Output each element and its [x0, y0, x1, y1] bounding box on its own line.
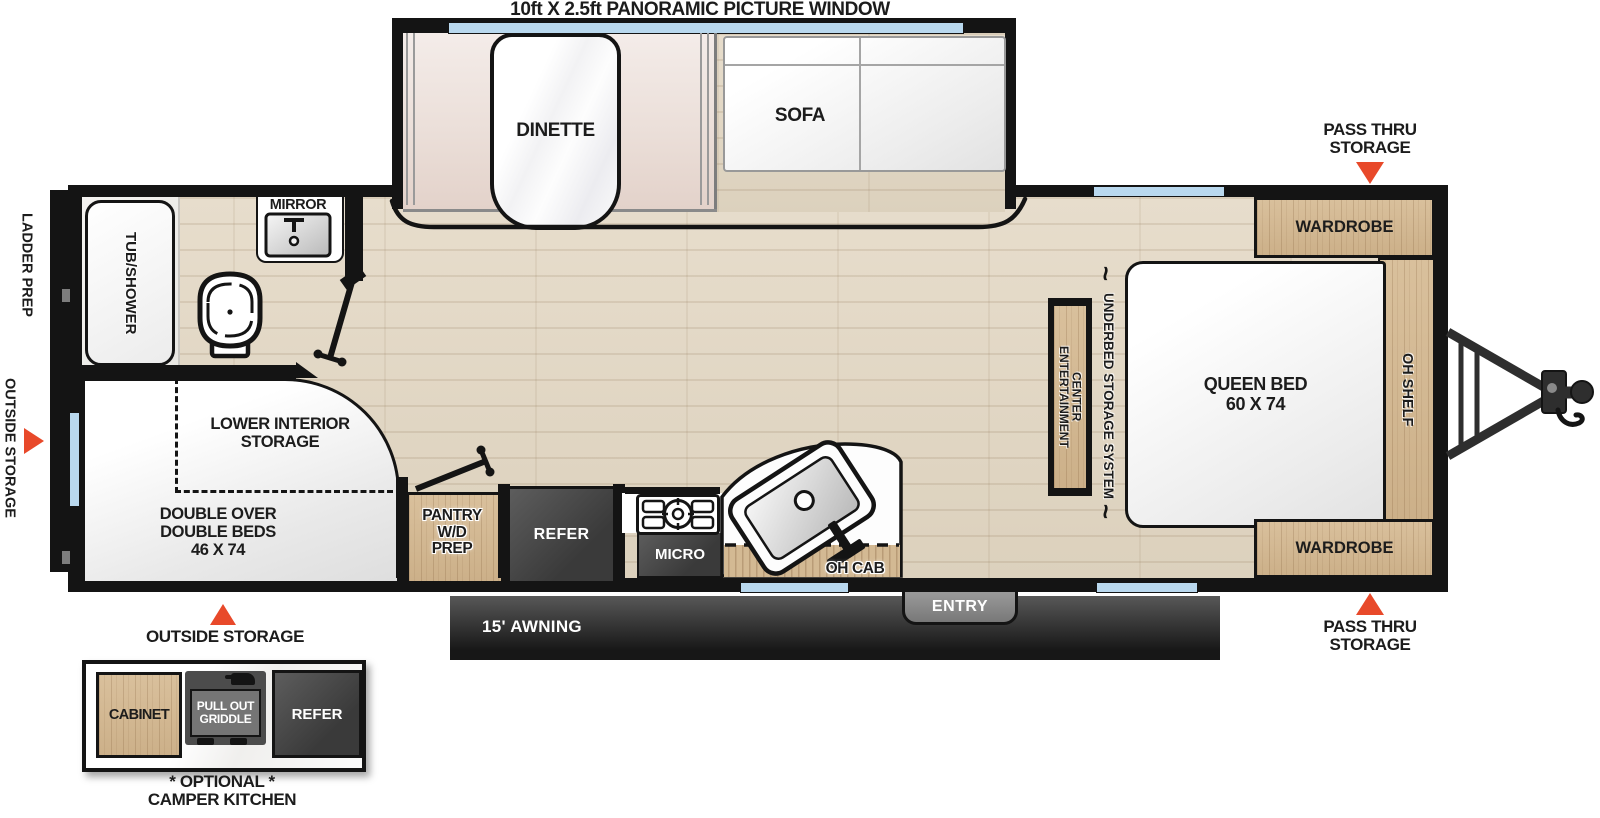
pull-out-griddle-unit: PULL OUT GRIDDLE: [185, 671, 266, 745]
outside-storage-left-arrow-icon: [24, 428, 44, 454]
kitchen-post-right: [613, 484, 625, 578]
griddle-kettle-handle-icon: [225, 675, 233, 679]
oh-shelf-label: OH SHELF: [1399, 353, 1414, 426]
pantry-label: PANTRY W/D PREP: [406, 508, 498, 558]
griddle-label-panel: PULL OUT GRIDDLE: [190, 689, 261, 737]
entry-door-tab: ENTRY: [902, 589, 1018, 625]
sofa-label: SOFA: [725, 106, 875, 127]
pass-thru-storage-bottom-label: PASS THRU STORAGE: [1295, 618, 1445, 655]
entertainment-center-label: ENTERTAINMENT CENTER: [1057, 346, 1082, 448]
page-title: 10ft X 2.5ft PANORAMIC PICTURE WINDOW: [400, 0, 1000, 21]
window-rear-wall: [69, 412, 80, 507]
mirror-label: MIRROR: [256, 198, 340, 214]
slide-divider-line: [714, 33, 717, 209]
sofa-back-line: [725, 64, 1004, 66]
underbed-storage-label: UNDERBED STORAGE SYSTEM: [1101, 293, 1115, 499]
microwave: MICRO: [637, 530, 723, 578]
lower-interior-storage-label: LOWER INTERIOR STORAGE: [195, 416, 365, 452]
tub-shower-label: TUB/SHOWER: [122, 232, 138, 335]
entry-label: ENTRY: [932, 598, 988, 616]
bumper-bracket-top: [62, 289, 70, 302]
pass-thru-storage-top-label: PASS THRU STORAGE: [1295, 121, 1445, 158]
pass-thru-top-arrow-icon: [1356, 162, 1384, 184]
sofa-center-line: [859, 38, 861, 170]
window-bottom-wall-bedroom: [1096, 582, 1198, 593]
refrigerator: REFER: [510, 486, 613, 581]
bumper-bracket-bottom: [62, 551, 70, 564]
awning-label: 15' AWNING: [482, 618, 602, 636]
entertainment-center: ENTERTAINMENT CENTER: [1054, 306, 1086, 488]
wardrobe-bottom-label: WARDROBE: [1295, 539, 1393, 558]
bathroom-wall-doorstop: [296, 362, 318, 378]
camper-cabinet: CABINET: [96, 672, 182, 758]
oh-cab-label: OH CAB: [815, 561, 895, 578]
window-top-wall: [1093, 186, 1225, 197]
camper-refer: REFER: [272, 670, 362, 758]
kitchen-post-mid: [498, 484, 510, 578]
wardrobe-top: WARDROBE: [1254, 197, 1435, 258]
outside-storage-bottom-arrow-icon: [210, 604, 236, 625]
griddle-foot-right: [230, 738, 247, 745]
window-bottom-wall-kitchen: [740, 582, 849, 593]
squiggle-top-icon: ~: [1090, 266, 1121, 281]
tub-shower: TUB/SHOWER: [85, 200, 175, 366]
refer-label: REFER: [534, 526, 590, 544]
wardrobe-top-label: WARDROBE: [1295, 218, 1393, 237]
queen-bed: QUEEN BED 60 X 74: [1125, 261, 1386, 528]
camper-griddle-label: PULL OUT GRIDDLE: [197, 700, 254, 726]
dinette-table: DINETTE: [490, 33, 621, 230]
ladder-prep-label: LADDER PREP: [18, 213, 33, 317]
double-beds-label: DOUBLE OVER DOUBLE BEDS 46 X 74: [148, 506, 288, 559]
trailer-hitch: [1448, 332, 1593, 456]
griddle-foot-left: [197, 738, 214, 745]
dinette-bench-line-1: [406, 33, 408, 205]
outside-storage-left-label-wrap: OUTSIDE STORAGE: [0, 345, 21, 550]
oh-shelf: OH SHELF: [1378, 258, 1435, 522]
underbed-storage-label-wrap: UNDERBED STORAGE SYSTEM: [1094, 282, 1122, 510]
camper-kitchen-name-label: CAMPER KITCHEN: [122, 791, 322, 809]
camper-refer-label: REFER: [292, 706, 343, 723]
pass-thru-bottom-arrow-icon: [1356, 593, 1384, 615]
micro-label: MICRO: [655, 546, 705, 563]
sofa: SOFA: [723, 36, 1006, 172]
floorplan-stage: 10ft X 2.5ft PANORAMIC PICTURE WINDOW PA…: [0, 0, 1600, 818]
ladder-prep-label-wrap: LADDER PREP: [14, 192, 38, 337]
squiggle-bottom-icon: ~: [1090, 504, 1121, 519]
griddle-kettle-icon: [231, 673, 255, 685]
queen-bed-label: QUEEN BED 60 X 74: [1204, 375, 1307, 414]
dinette-bench-line-2: [413, 33, 415, 205]
camper-cabinet-label: CABINET: [109, 707, 169, 723]
wardrobe-bottom: WARDROBE: [1254, 519, 1435, 578]
dinette-bench-line-4: [707, 33, 709, 205]
outside-storage-bottom-label: OUTSIDE STORAGE: [125, 628, 325, 646]
dinette-bench-line-3: [700, 33, 702, 205]
camper-optional-label: * OPTIONAL *: [122, 773, 322, 791]
rear-bumper: [50, 190, 68, 572]
outside-storage-left-label: OUTSIDE STORAGE: [1, 378, 16, 518]
dinette-label: DINETTE: [516, 121, 594, 142]
